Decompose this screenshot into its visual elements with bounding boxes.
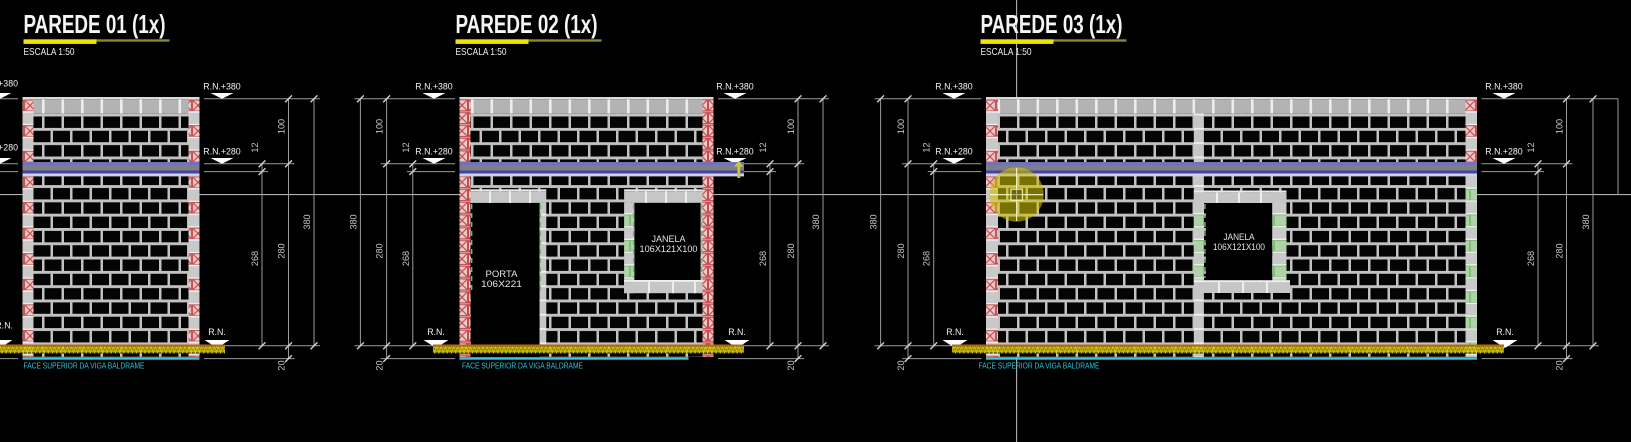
svg-text:12: 12 xyxy=(758,142,768,152)
svg-text:R.N.+280: R.N.+280 xyxy=(1485,147,1523,157)
svg-text:R.N.+380: R.N.+380 xyxy=(716,81,754,91)
svg-text:FACE SUPERIOR DA VIGA BALDRAME: FACE SUPERIOR DA VIGA BALDRAME xyxy=(979,361,1100,371)
svg-text:100: 100 xyxy=(277,119,287,134)
svg-text:280: 280 xyxy=(896,243,906,258)
svg-text:R.N.+280: R.N.+280 xyxy=(203,147,241,157)
svg-text:20: 20 xyxy=(786,360,796,370)
svg-text:R.N.+380: R.N.+380 xyxy=(203,81,241,91)
svg-text:12: 12 xyxy=(401,142,411,152)
svg-text:R.N.: R.N. xyxy=(946,327,964,337)
svg-text:R.N.+380: R.N.+380 xyxy=(415,81,453,91)
svg-text:FACE SUPERIOR DA VIGA BALDRAME: FACE SUPERIOR DA VIGA BALDRAME xyxy=(24,361,145,371)
svg-text:100: 100 xyxy=(786,119,796,134)
svg-text:106X121X100: 106X121X100 xyxy=(640,244,698,255)
svg-text:280: 280 xyxy=(375,243,385,258)
svg-text:R.N.+280: R.N.+280 xyxy=(415,147,453,157)
svg-text:100: 100 xyxy=(375,119,385,134)
svg-text:R.N.: R.N. xyxy=(1496,327,1514,337)
svg-text:JANELA: JANELA xyxy=(1224,232,1256,242)
svg-text:380: 380 xyxy=(811,214,821,229)
svg-text:268: 268 xyxy=(250,251,260,266)
svg-text:106X221: 106X221 xyxy=(481,279,522,290)
svg-text:268: 268 xyxy=(922,251,932,266)
svg-text:FACE SUPERIOR DA VIGA BALDRAME: FACE SUPERIOR DA VIGA BALDRAME xyxy=(462,361,583,371)
svg-text:12: 12 xyxy=(922,142,932,152)
svg-text:R.N.: R.N. xyxy=(0,321,13,331)
svg-text:380: 380 xyxy=(348,214,358,229)
svg-text:268: 268 xyxy=(401,251,411,266)
svg-text:380: 380 xyxy=(302,214,312,229)
svg-text:R.N.+380: R.N.+380 xyxy=(0,79,18,89)
svg-text:ESCALA 1:50: ESCALA 1:50 xyxy=(981,46,1032,58)
svg-text:R.N.+380: R.N.+380 xyxy=(1485,81,1523,91)
svg-text:R.N.: R.N. xyxy=(427,327,445,337)
svg-text:280: 280 xyxy=(1555,243,1565,258)
svg-text:280: 280 xyxy=(786,243,796,258)
svg-text:106X121X100: 106X121X100 xyxy=(1213,242,1265,252)
svg-text:12: 12 xyxy=(250,142,260,152)
svg-text:PAREDE 03 (1x): PAREDE 03 (1x) xyxy=(981,9,1123,39)
svg-text:R.N.: R.N. xyxy=(728,327,746,337)
svg-text:PAREDE 02 (1x): PAREDE 02 (1x) xyxy=(456,9,598,39)
svg-text:R.N.+280: R.N.+280 xyxy=(716,147,754,157)
svg-text:PAREDE 01 (1x): PAREDE 01 (1x) xyxy=(24,9,166,39)
svg-text:20: 20 xyxy=(277,360,287,370)
svg-text:100: 100 xyxy=(896,119,906,134)
svg-text:20: 20 xyxy=(1555,360,1565,370)
svg-text:R.N.+280: R.N.+280 xyxy=(935,147,973,157)
svg-text:12: 12 xyxy=(1526,142,1536,152)
svg-text:20: 20 xyxy=(375,360,385,370)
svg-text:268: 268 xyxy=(758,251,768,266)
svg-text:R.N.: R.N. xyxy=(208,327,226,337)
svg-text:ESCALA 1:50: ESCALA 1:50 xyxy=(24,46,75,58)
svg-text:268: 268 xyxy=(1526,251,1536,266)
svg-text:ESCALA 1:50: ESCALA 1:50 xyxy=(456,46,507,58)
svg-text:280: 280 xyxy=(277,243,287,258)
svg-text:100: 100 xyxy=(1555,119,1565,134)
svg-text:20: 20 xyxy=(896,360,906,370)
svg-text:R.N.+380: R.N.+380 xyxy=(935,81,973,91)
svg-text:380: 380 xyxy=(1581,214,1591,229)
svg-text:R.N.+280: R.N.+280 xyxy=(0,142,18,152)
svg-text:380: 380 xyxy=(869,214,879,229)
